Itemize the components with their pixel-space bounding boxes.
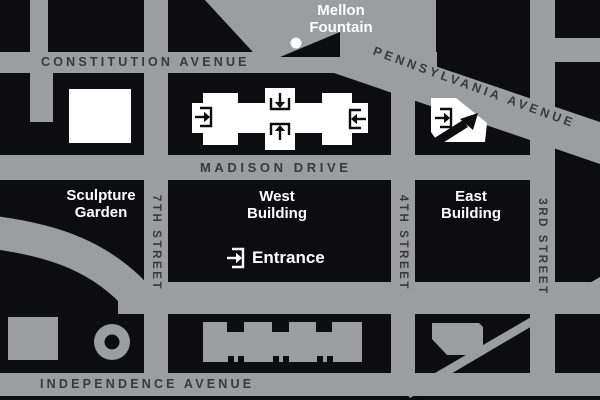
west-building-line1: West bbox=[247, 189, 307, 206]
west-side-street-stub bbox=[30, 73, 53, 122]
mellon-fountain-line2: Fountain bbox=[309, 20, 372, 37]
east-building-line2: Building bbox=[441, 206, 501, 223]
entrance-label: Entrance bbox=[252, 248, 325, 268]
east-building-line1: East bbox=[441, 189, 501, 206]
curved-road bbox=[0, 232, 140, 300]
nga-area-map: CONSTITUTION AVENUE PENNSYLVANIA AVENUE … bbox=[0, 0, 600, 400]
west-side-street bbox=[30, 0, 48, 52]
constitution-avenue-label: CONSTITUTION AVENUE bbox=[41, 55, 250, 69]
crenellated-building bbox=[203, 322, 362, 362]
seventh-street-label: 7TH STREET bbox=[150, 195, 162, 291]
sculpture-garden-line2: Garden bbox=[66, 205, 135, 222]
sculpture-garden-line1: Sculpture bbox=[66, 188, 135, 205]
building-rect-southwest bbox=[8, 317, 58, 360]
hirshhorn-ring-hole bbox=[105, 335, 120, 350]
trapezoid-building bbox=[432, 323, 483, 355]
sculpture-garden-pavilion bbox=[69, 89, 131, 143]
mellon-fountain-label: Mellon Fountain bbox=[309, 3, 372, 36]
fourth-street-label: 4TH STREET bbox=[397, 195, 409, 291]
west-building-label: West Building bbox=[247, 189, 307, 222]
main-entrance-arrow-icon bbox=[227, 249, 243, 267]
mellon-fountain-dot bbox=[291, 38, 302, 49]
sculpture-garden-label: Sculpture Garden bbox=[66, 188, 135, 221]
madison-drive-label: MADISON DRIVE bbox=[200, 160, 352, 175]
west-building-line2: Building bbox=[247, 206, 307, 223]
independence-avenue-label: INDEPENDENCE AVENUE bbox=[40, 377, 254, 391]
east-building-label: East Building bbox=[441, 189, 501, 222]
third-street-label: 3RD STREET bbox=[536, 198, 548, 296]
mellon-fountain-line1: Mellon bbox=[309, 3, 372, 20]
mall-walk-road bbox=[118, 282, 600, 314]
